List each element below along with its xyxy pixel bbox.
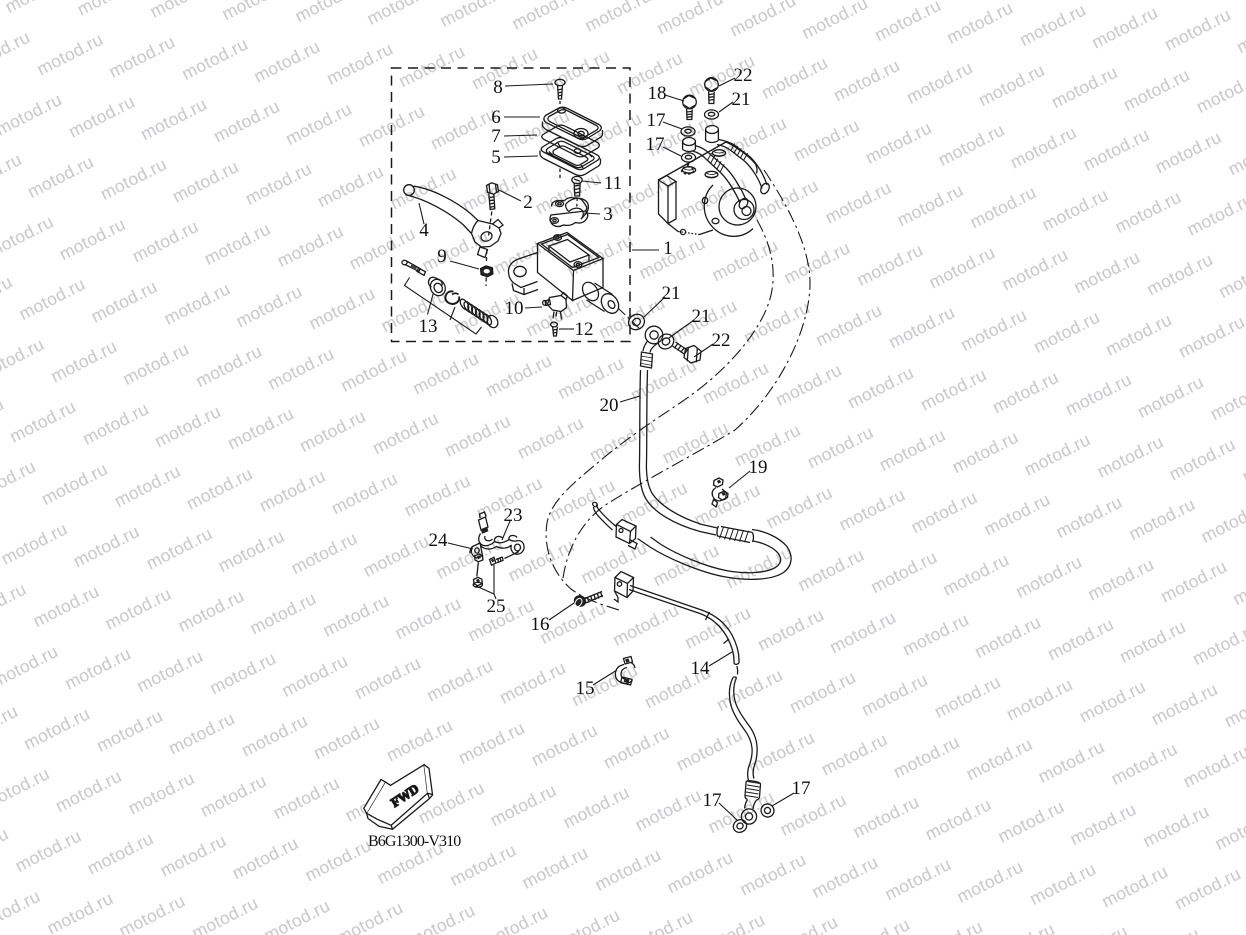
svg-text:22: 22 [712, 330, 731, 351]
svg-text:1: 1 [663, 238, 673, 259]
svg-text:7: 7 [491, 126, 501, 147]
svg-text:19: 19 [749, 457, 768, 478]
svg-text:20: 20 [600, 395, 619, 416]
svg-text:14: 14 [691, 658, 711, 679]
svg-text:12: 12 [575, 319, 594, 340]
svg-text:17: 17 [647, 110, 666, 131]
svg-text:23: 23 [504, 505, 523, 526]
svg-text:21: 21 [662, 283, 681, 304]
svg-text:8: 8 [493, 77, 503, 98]
svg-text:22: 22 [734, 65, 753, 86]
svg-text:17: 17 [792, 778, 811, 799]
svg-text:25: 25 [487, 596, 506, 617]
svg-text:10: 10 [505, 298, 524, 319]
svg-text:9: 9 [437, 246, 447, 267]
svg-text:15: 15 [576, 678, 595, 699]
svg-text:11: 11 [604, 173, 622, 194]
svg-text:18: 18 [648, 83, 667, 104]
svg-text:2: 2 [523, 192, 533, 213]
svg-text:17: 17 [703, 790, 722, 811]
svg-text:6: 6 [491, 107, 501, 128]
svg-text:17: 17 [646, 134, 665, 155]
svg-text:21: 21 [692, 306, 711, 327]
svg-text:24: 24 [429, 530, 449, 551]
svg-text:B6G1300-V310: B6G1300-V310 [368, 833, 461, 850]
svg-text:16: 16 [531, 614, 550, 635]
svg-text:21: 21 [732, 89, 751, 110]
svg-text:13: 13 [419, 316, 438, 337]
svg-text:5: 5 [491, 147, 501, 168]
svg-text:3: 3 [603, 204, 613, 225]
